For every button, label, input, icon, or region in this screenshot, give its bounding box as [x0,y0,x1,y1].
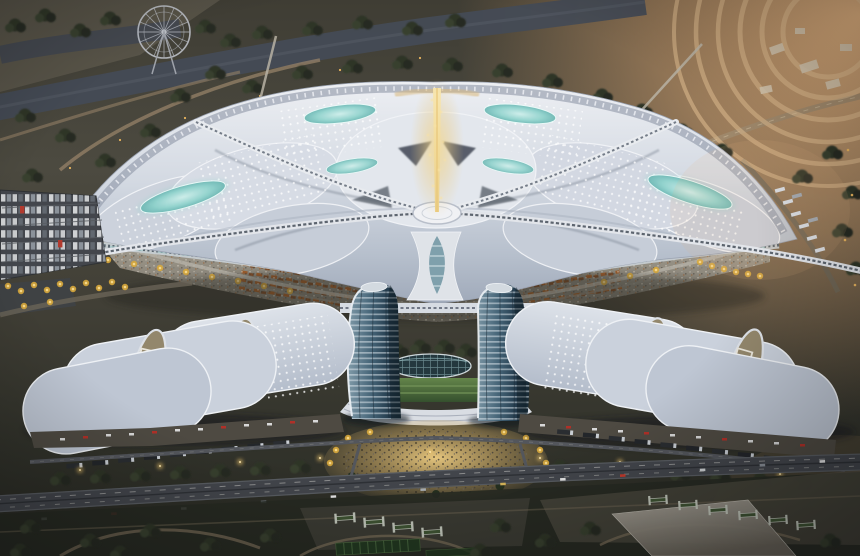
vignette [0,0,860,556]
airport-expo-aerial-rendering [0,0,860,556]
scene-svg [0,0,860,556]
